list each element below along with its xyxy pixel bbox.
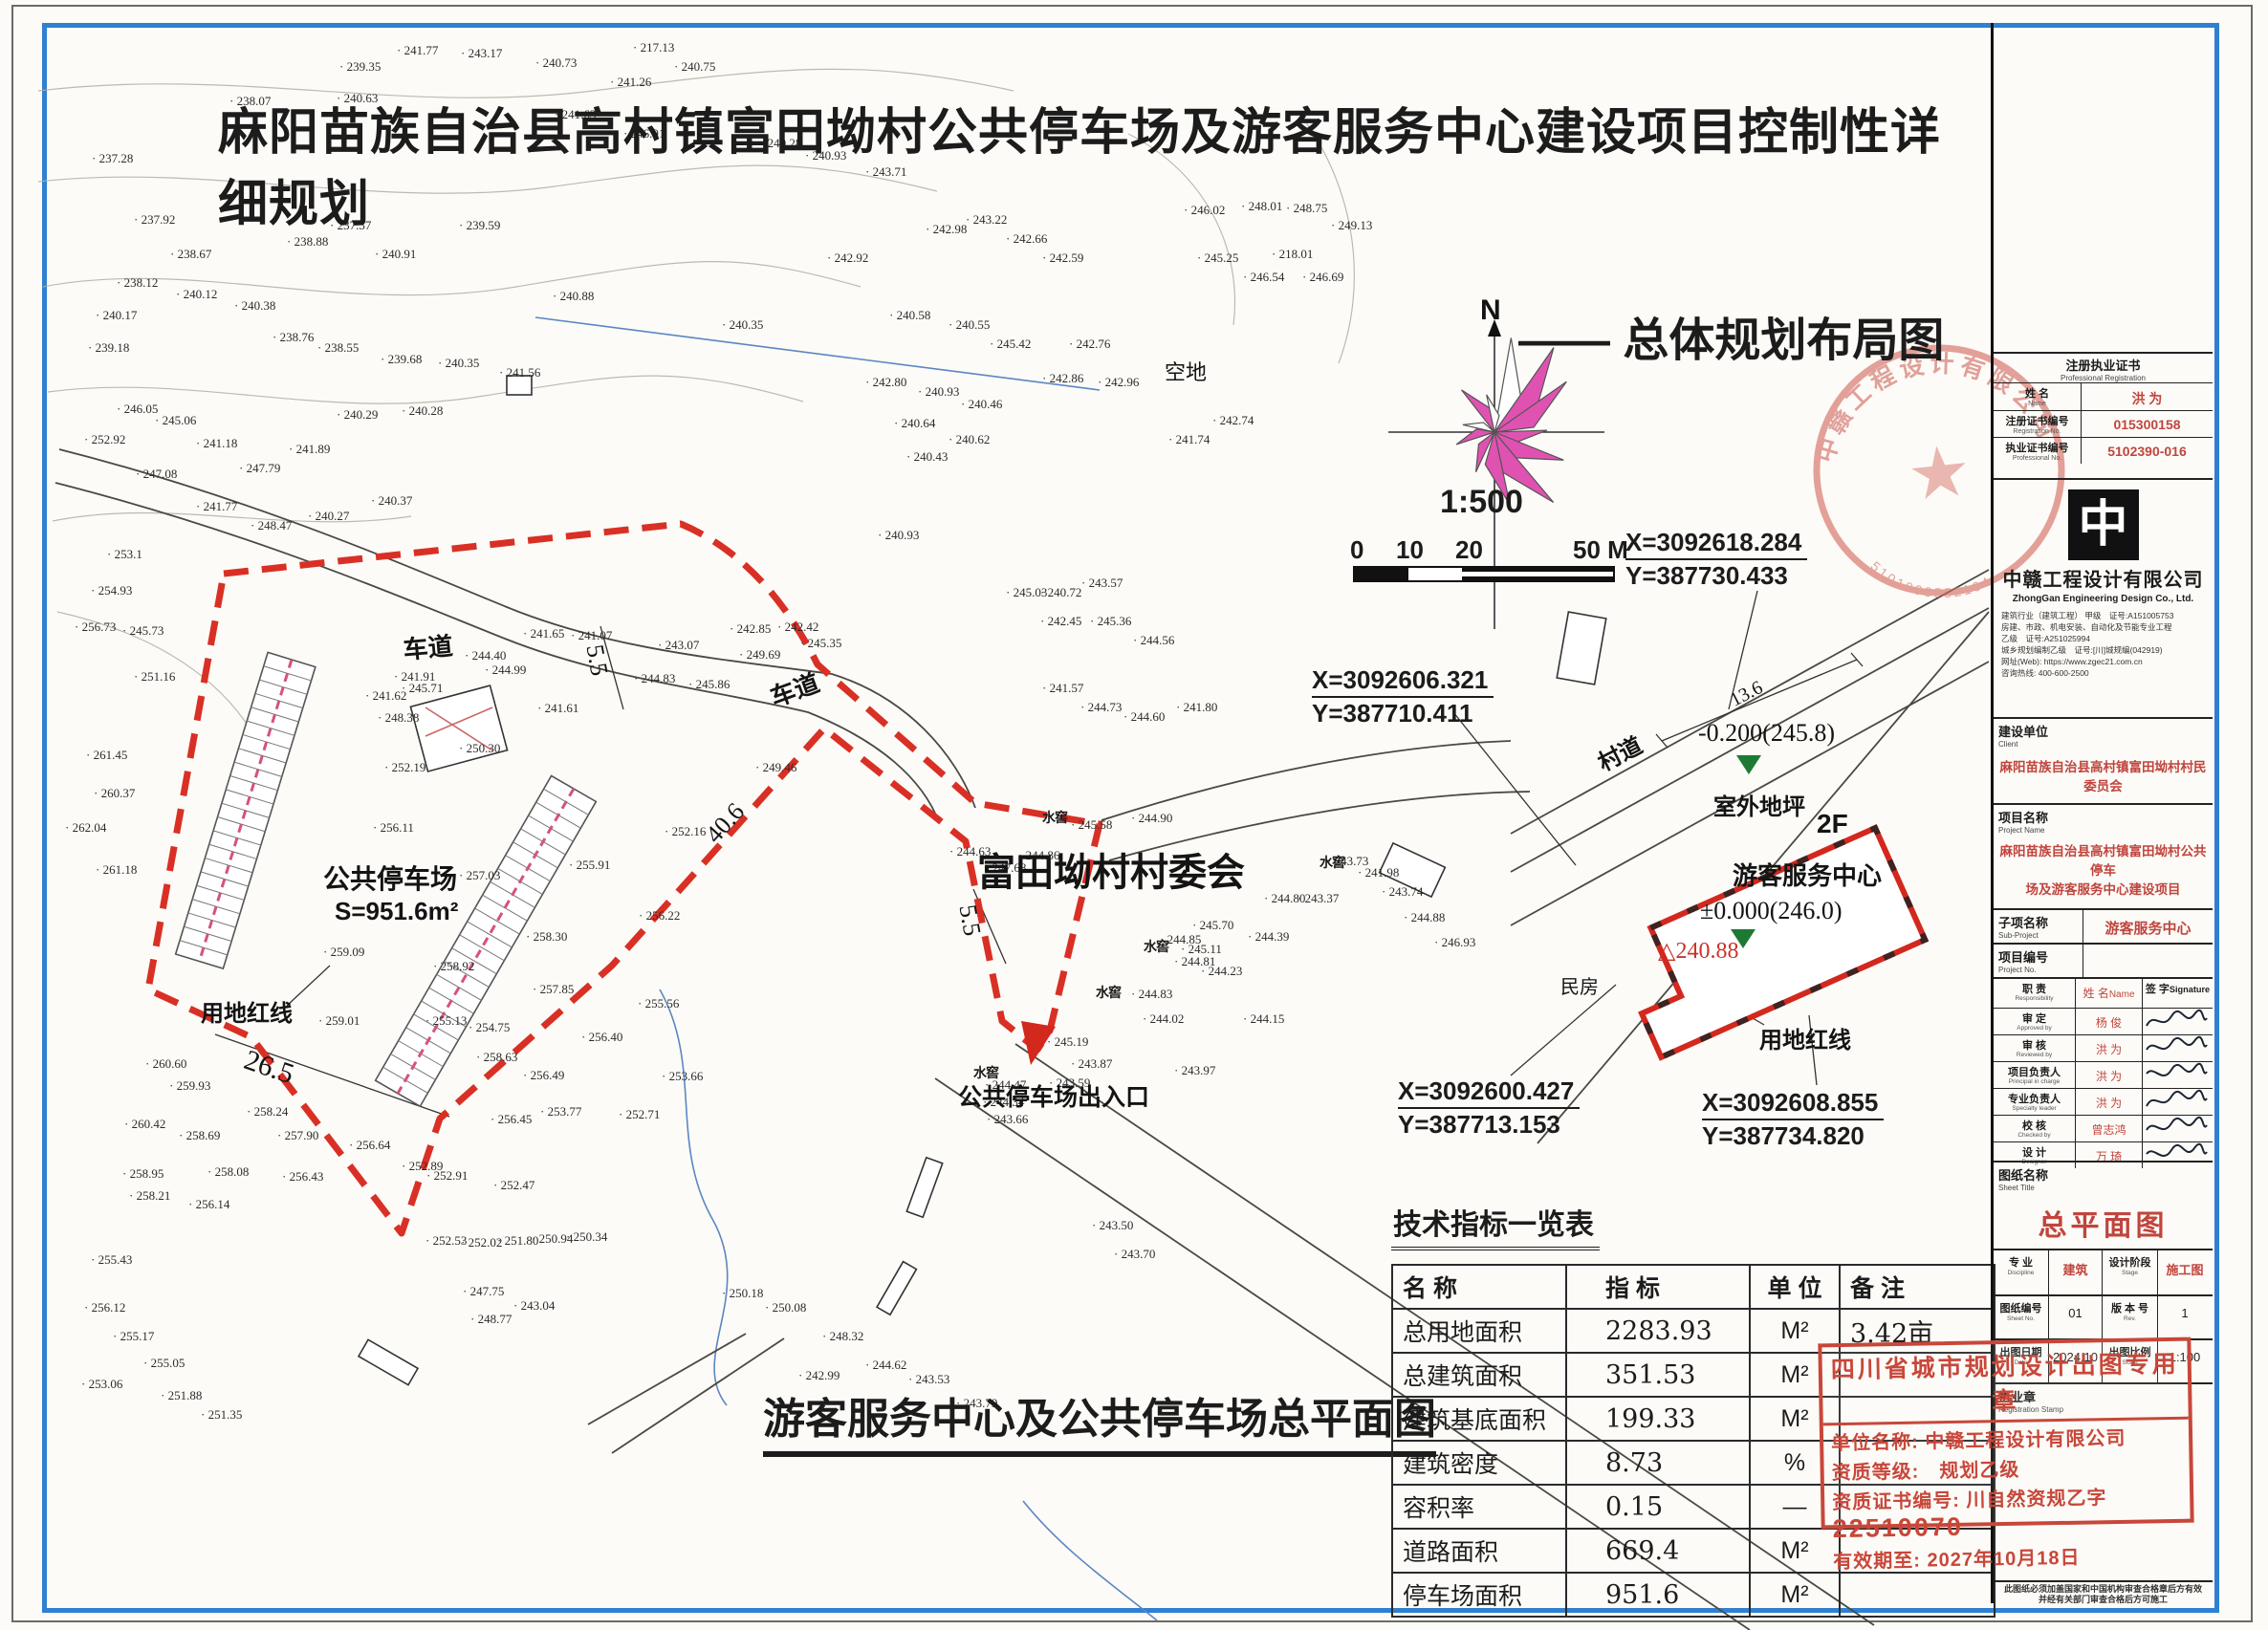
spot-elevation: · 259.01 bbox=[318, 1013, 360, 1029]
signature-role: 审 定Approved by bbox=[1994, 1009, 2076, 1034]
drawing-title: 麻阳苗族自治县高村镇富田坳村公共停车场及游客服务中心建设项目控制性详细规划 bbox=[218, 92, 1987, 235]
spot-elevation: · 250.30 bbox=[459, 741, 500, 756]
spot-elevation: · 244.23 bbox=[1201, 964, 1242, 979]
spot-elevation: · 240.72 bbox=[1040, 585, 1081, 600]
north-label: N bbox=[1480, 294, 1501, 327]
discipline-value: 建筑 bbox=[2049, 1250, 2103, 1294]
spot-elevation: · 245.71 bbox=[402, 681, 443, 696]
water-cellar-label: 水窖 bbox=[1144, 937, 1168, 956]
signature-squiggle bbox=[2143, 1062, 2210, 1087]
spot-elevation: · 256.73 bbox=[75, 619, 116, 635]
spot-elevation: · 242.59 bbox=[1042, 250, 1083, 266]
spot-elevation: · 247.79 bbox=[239, 461, 280, 476]
scale-bar-label: 0 bbox=[1350, 535, 1363, 565]
scale-bar-label: 50 M bbox=[1573, 535, 1628, 565]
project-section: 项目名称Project Name 麻阳苗族自治县高村镇富田坳村公共停车 场及游客… bbox=[1994, 803, 2213, 908]
spot-elevation: · 238.88 bbox=[287, 234, 328, 250]
signature-name: 洪 为 bbox=[2076, 1089, 2143, 1115]
spot-elevation: · 262.04 bbox=[65, 820, 106, 836]
spot-elevation: · 258.08 bbox=[207, 1164, 249, 1180]
spot-elevation: · 252.02 bbox=[461, 1235, 502, 1250]
tech-table-row: 停车场面积951.6M² bbox=[1392, 1573, 1995, 1617]
spot-elevation: · 241.98 bbox=[1358, 865, 1399, 880]
note-line: 并经有关部门审查合格后方可施工 bbox=[1994, 1595, 2213, 1605]
tech-table-cell: 0.15 bbox=[1566, 1485, 1750, 1529]
spot-elevation: · 252.71 bbox=[619, 1107, 660, 1122]
sheet-title-section: 图纸名称Sheet Title 总平面图 bbox=[1994, 1161, 2213, 1249]
spot-elevation: · 241.65 bbox=[523, 626, 564, 641]
spot-elevation: · 242.85 bbox=[730, 621, 771, 637]
scale-bar-label: 10 bbox=[1396, 535, 1424, 565]
signature-row: 项目负责人Principal in charge洪 为 bbox=[1994, 1061, 2213, 1088]
credential-line: 房建、市政、机电安装、自动化及节能专业工程 bbox=[2001, 621, 2205, 633]
tech-table-cell: 951.6 bbox=[1566, 1573, 1750, 1617]
signature-name: 曾志鸿 bbox=[2076, 1116, 2143, 1141]
stage-label-en: Stage bbox=[2103, 1270, 2157, 1276]
coordinate-callout: X=3092608.855Y=387734.820 bbox=[1702, 1088, 1884, 1151]
spot-elevation: · 260.37 bbox=[94, 786, 135, 801]
tech-table-cell: M² bbox=[1750, 1573, 1840, 1617]
titleblock-note: 此图纸必须加盖国家和中国机构审查合格章后方有效并经有关部门审查合格后方可施工 bbox=[1994, 1580, 2213, 1603]
spot-elevation: · 257.90 bbox=[277, 1128, 318, 1143]
tech-table-header: 单 位 bbox=[1750, 1265, 1840, 1309]
spot-elevation: · 257.85 bbox=[533, 982, 574, 997]
spot-elevation: · 244.73 bbox=[1080, 700, 1122, 715]
client-value: 麻阳苗族自治县高村镇富田坳村村民委员会 bbox=[1994, 756, 2213, 794]
tech-table-cell: 总用地面积 bbox=[1392, 1309, 1566, 1353]
drawing-subtitle: —— 总体规划布局图 bbox=[1518, 302, 1944, 369]
spot-elevation: · 237.92 bbox=[134, 212, 175, 228]
registration-row-value: 洪 为 bbox=[2082, 383, 2213, 410]
scale-bar bbox=[1353, 566, 1615, 582]
project-label: 项目名称 bbox=[1998, 811, 2048, 825]
subproject-value: 游客服务中心 bbox=[2083, 910, 2213, 943]
projectno-row: 项目编号Project No. bbox=[1994, 943, 2213, 977]
spot-elevation: · 241.61 bbox=[537, 701, 578, 716]
signature-role: 项目负责人Principal in charge bbox=[1994, 1062, 2076, 1088]
spot-elevation: · 240.43 bbox=[906, 449, 948, 465]
spot-elevation: · 240.93 bbox=[878, 528, 919, 543]
credential-line: 咨询热线: 400-600-2500 bbox=[2001, 667, 2205, 679]
signature-autograph bbox=[2143, 1035, 2213, 1061]
spot-elevation: · 244.90 bbox=[1131, 811, 1172, 826]
spot-elevation: · 252.92 bbox=[84, 432, 125, 447]
client-label-en: Client bbox=[1998, 740, 2213, 749]
spot-elevation: · 253.06 bbox=[81, 1377, 122, 1392]
spot-elevation: · 242.99 bbox=[798, 1368, 840, 1383]
map-label: ±0.000(246.0) bbox=[1700, 897, 1843, 925]
rev-label-en: Rev. bbox=[2103, 1315, 2157, 1322]
spot-elevation: · 238.76 bbox=[273, 330, 314, 345]
coordinate-callout: X=3092618.284Y=387730.433 bbox=[1625, 528, 1807, 591]
spot-elevation: · 256.40 bbox=[581, 1030, 622, 1045]
signature-header-cell: 姓 名Name bbox=[2076, 979, 2143, 1008]
spot-elevation: · 248.47 bbox=[251, 518, 292, 533]
registration-row-label: 注册证书编号Registration No. bbox=[1994, 411, 2082, 437]
spot-elevation: · 243.17 bbox=[461, 46, 502, 61]
spot-elevation: · 240.73 bbox=[535, 55, 577, 71]
spot-elevation: · 241.77 bbox=[397, 43, 438, 58]
spot-elevation: · 256.45 bbox=[491, 1112, 532, 1127]
tech-table-cell bbox=[1840, 1573, 1995, 1617]
spot-elevation: · 241.62 bbox=[365, 688, 406, 704]
spot-elevation: · 241.74 bbox=[1168, 432, 1210, 447]
spot-elevation: · 244.39 bbox=[1248, 929, 1289, 945]
spot-elevation: · 251.88 bbox=[161, 1388, 202, 1403]
qualification-stamp-title: 四川省城市规划设计出图专用章 bbox=[1821, 1341, 2188, 1426]
signature-role: 校 核Checked by bbox=[1994, 1116, 2076, 1141]
coordinate-callout: X=3092606.321Y=387710.411 bbox=[1312, 665, 1494, 728]
spot-elevation: · 255.43 bbox=[91, 1252, 132, 1268]
spot-elevation: · 245.36 bbox=[1090, 614, 1131, 629]
signature-name: 杨 俊 bbox=[2076, 1009, 2143, 1034]
spot-elevation: · 245.35 bbox=[800, 636, 841, 651]
spot-elevation: · 244.15 bbox=[1243, 1011, 1284, 1027]
spot-elevation: · 239.35 bbox=[339, 59, 381, 75]
project-value-1: 麻阳苗族自治县高村镇富田坳村公共停车 bbox=[1994, 840, 2213, 879]
rev-label: 版 本 号 bbox=[2111, 1303, 2148, 1315]
spot-elevation: · 259.09 bbox=[323, 945, 364, 960]
registration-title-en: Professional Registration bbox=[1994, 374, 2213, 382]
map-label: 用地红线 bbox=[1759, 1021, 1851, 1054]
level-marker-icon bbox=[1736, 755, 1761, 774]
water-cellar-label: 水窖 bbox=[1319, 853, 1344, 872]
coordinate-y: Y=387734.820 bbox=[1702, 1120, 1884, 1151]
level-marker-icon bbox=[1731, 929, 1756, 948]
spot-elevation: · 254.75 bbox=[469, 1020, 510, 1035]
spot-elevation: · 244.56 bbox=[1133, 633, 1174, 648]
spot-elevation: · 242.96 bbox=[1098, 375, 1139, 390]
signature-row: 审 定Approved by杨 俊 bbox=[1994, 1008, 2213, 1034]
signature-autograph bbox=[2143, 1062, 2213, 1088]
water-cellar-label: 水窖 bbox=[1096, 983, 1121, 1002]
spot-elevation: · 240.37 bbox=[371, 493, 412, 509]
map-label: S=951.6m² bbox=[335, 897, 458, 926]
scale-ratio: 1:500 bbox=[1440, 484, 1523, 521]
spot-elevation: · 242.74 bbox=[1212, 413, 1254, 428]
signature-name: 洪 为 bbox=[2076, 1035, 2143, 1061]
coordinate-y: Y=387710.411 bbox=[1312, 698, 1494, 728]
tech-table-title: 技术指标一览表 bbox=[1391, 1201, 1600, 1250]
signature-header-cell: 签 字Signature bbox=[2143, 979, 2213, 1008]
stamp-cert-line: 资质证书编号: 川自然资规乙字22510070 bbox=[1824, 1479, 2191, 1545]
stage-label: 设计阶段 bbox=[2109, 1257, 2151, 1269]
tech-table-cell: 669.4 bbox=[1566, 1529, 1750, 1573]
stage-value: 施工图 bbox=[2158, 1250, 2212, 1294]
spot-elevation: · 255.05 bbox=[143, 1356, 185, 1371]
spot-elevation: · 243.66 bbox=[987, 1112, 1028, 1127]
scale-bar-label: 20 bbox=[1455, 535, 1483, 565]
spot-elevation: · 243.87 bbox=[1071, 1056, 1112, 1072]
map-label: 公共停车场出入口 bbox=[958, 1078, 1149, 1113]
coordinate-y: Y=387730.433 bbox=[1625, 560, 1807, 591]
sheetno-value: 01 bbox=[2049, 1296, 2103, 1338]
spot-elevation: · 244.80 bbox=[1264, 891, 1305, 906]
spot-elevation: · 245.86 bbox=[688, 677, 730, 692]
map-label: 2F bbox=[1817, 809, 1848, 839]
registration-row-label: 姓 名Name bbox=[1994, 383, 2082, 410]
company-credentials: 建筑行业（建筑工程） 甲级 证号:A151005753房建、市政、机电安装、自动… bbox=[1994, 610, 2213, 679]
coordinate-x: X=3092618.284 bbox=[1625, 528, 1807, 560]
tech-table-cell: 2283.93 bbox=[1566, 1309, 1750, 1353]
subproject-label: 子项名称 bbox=[1998, 916, 2048, 930]
spot-elevation: · 245.58 bbox=[1071, 817, 1112, 833]
signature-name: 洪 为 bbox=[2076, 1062, 2143, 1088]
spot-elevation: · 258.95 bbox=[122, 1166, 164, 1182]
sheetno-label-en: Sheet No. bbox=[1994, 1315, 2048, 1322]
company-section: 中 中赣工程设计有限公司 ZhongGan Engineering Design… bbox=[1994, 478, 2213, 717]
spot-elevation: · 245.19 bbox=[1047, 1034, 1088, 1050]
spot-elevation: · 240.38 bbox=[234, 298, 275, 314]
map-label: 5.5 bbox=[579, 642, 613, 678]
spot-elevation: · 241.07 bbox=[571, 628, 612, 643]
spot-elevation: · 241.26 bbox=[610, 75, 651, 90]
sheetno-row: 图纸编号Sheet No. 01 版 本 号Rev. 1 bbox=[1994, 1294, 2213, 1338]
spot-elevation: · 242.76 bbox=[1069, 337, 1110, 352]
stamp-cert-number: 22510070 bbox=[1832, 1512, 1963, 1543]
spot-elevation: · 252.91 bbox=[426, 1168, 468, 1184]
discipline-label-en: Discipline bbox=[1994, 1270, 2048, 1276]
spot-elevation: · 243.04 bbox=[513, 1298, 555, 1314]
coordinate-y: Y=387713.153 bbox=[1398, 1109, 1580, 1140]
spot-elevation: · 240.27 bbox=[308, 509, 349, 524]
company-logo: 中 bbox=[2068, 489, 2139, 560]
spot-elevation: · 242.42 bbox=[777, 619, 818, 635]
project-value-2: 场及游客服务中心建设项目 bbox=[1994, 879, 2213, 898]
spot-elevation: · 217.13 bbox=[633, 40, 674, 55]
spot-elevation: · 246.05 bbox=[117, 402, 158, 417]
map-label: -0.200(245.8) bbox=[1698, 719, 1835, 748]
sheet-title-value: 总平面图 bbox=[1994, 1202, 2213, 1244]
spot-elevation: · 256.49 bbox=[523, 1068, 564, 1083]
signature-squiggle bbox=[2143, 1035, 2210, 1060]
projectno-label-en: Project No. bbox=[1998, 966, 2083, 974]
discipline-label: 专 业 bbox=[2009, 1257, 2033, 1269]
tech-table-cell: 总建筑面积 bbox=[1392, 1353, 1566, 1397]
coordinate-x: X=3092600.427 bbox=[1398, 1076, 1580, 1109]
spot-elevation: · 245.42 bbox=[990, 337, 1031, 352]
spot-elevation: · 246.93 bbox=[1434, 935, 1475, 950]
spot-elevation: · 240.91 bbox=[375, 247, 416, 262]
spot-elevation: · 247.08 bbox=[136, 467, 177, 482]
spot-elevation: · 246.69 bbox=[1302, 270, 1343, 285]
projectno-label: 项目编号 bbox=[1998, 950, 2048, 965]
spot-elevation: · 241.89 bbox=[289, 442, 330, 457]
registration-row: 注册证书编号Registration No.015300158 bbox=[1994, 410, 2213, 437]
subproject-label-en: Sub-Project bbox=[1998, 931, 2083, 940]
spot-elevation: · 239.68 bbox=[381, 352, 422, 367]
sheet-title-label-en: Sheet Title bbox=[1998, 1184, 2213, 1192]
drawing-sheet: ★ 中赣工程设计有限公司 5101098552104 麻阳苗族自治县高村镇富田坳… bbox=[0, 0, 2268, 1630]
spot-elevation: · 243.74 bbox=[1382, 884, 1423, 900]
signature-squiggle bbox=[2143, 1089, 2210, 1114]
spot-elevation: · 256.14 bbox=[188, 1197, 229, 1212]
plan-caption: 游客服务中心及公共停车场总平面图 bbox=[763, 1384, 1436, 1457]
registration-section: 注册执业证书 Professional Registration 姓 名Name… bbox=[1994, 352, 2213, 478]
sheet-title-label: 图纸名称 bbox=[1998, 1168, 2048, 1183]
signature-table: 职 责Responsibility姓 名Name签 字Signature审 定A… bbox=[1994, 977, 2213, 1161]
credential-line: 建筑行业（建筑工程） 甲级 证号:A151005753 bbox=[2001, 610, 2205, 621]
coordinate-callout: X=3092600.427Y=387713.153 bbox=[1398, 1076, 1580, 1140]
signature-header-cell: 职 责Responsibility bbox=[1994, 979, 2076, 1008]
spot-elevation: · 261.18 bbox=[96, 862, 137, 878]
rev-value: 1 bbox=[2158, 1296, 2212, 1338]
spot-elevation: · 250.34 bbox=[566, 1229, 607, 1245]
spot-elevation: · 245.06 bbox=[155, 413, 196, 428]
subproject-row: 子项名称Sub-Project 游客服务中心 bbox=[1994, 908, 2213, 943]
spot-elevation: · 244.40 bbox=[465, 648, 506, 663]
map-label: 室外地坪 bbox=[1713, 788, 1805, 821]
stamp-star-icon: ★ bbox=[1904, 430, 1975, 515]
water-cellar-label: 水窖 bbox=[1042, 808, 1067, 827]
spot-elevation: · 245.25 bbox=[1197, 250, 1238, 266]
coordinate-x: X=3092606.321 bbox=[1312, 665, 1494, 698]
map-label: 车道 bbox=[402, 626, 454, 665]
spot-elevation: · 250.18 bbox=[722, 1286, 763, 1301]
scale-bar-segment bbox=[1462, 568, 1613, 580]
tech-table-cell: 道路面积 bbox=[1392, 1529, 1566, 1573]
spot-elevation: · 243.97 bbox=[1174, 1063, 1215, 1078]
discipline-row: 专 业Discipline 建筑 设计阶段Stage 施工图 bbox=[1994, 1249, 2213, 1294]
spot-elevation: · 241.56 bbox=[499, 365, 540, 380]
spot-elevation: · 240.35 bbox=[438, 356, 479, 371]
spot-elevation: · 261.45 bbox=[86, 748, 127, 763]
spot-elevation: · 251.16 bbox=[134, 669, 175, 685]
tech-table-header: 名 称 bbox=[1392, 1265, 1566, 1309]
spot-elevation: · 258.30 bbox=[526, 929, 567, 945]
tech-table-header: 备 注 bbox=[1840, 1265, 1995, 1309]
spot-elevation: · 260.42 bbox=[124, 1117, 165, 1132]
spot-elevation: · 240.28 bbox=[402, 403, 443, 419]
sheetno-label: 图纸编号 bbox=[2000, 1303, 2042, 1315]
spot-elevation: · 240.29 bbox=[337, 407, 378, 423]
signature-squiggle bbox=[2143, 1009, 2210, 1033]
spot-elevation: · 240.62 bbox=[949, 432, 990, 447]
signature-autograph bbox=[2143, 1116, 2213, 1141]
spot-elevation: · 240.46 bbox=[961, 397, 1002, 412]
spot-elevation: · 256.22 bbox=[639, 908, 680, 924]
scale-bar-segment bbox=[1355, 568, 1408, 580]
spot-elevation: · 240.55 bbox=[949, 317, 990, 333]
tech-table-cell: 351.53 bbox=[1566, 1353, 1750, 1397]
spot-elevation: · 255.17 bbox=[113, 1329, 154, 1344]
signature-row: 专业负责人Specialty leader洪 为 bbox=[1994, 1088, 2213, 1115]
tech-table-header: 指 标 bbox=[1566, 1265, 1750, 1309]
spot-elevation: · 258.69 bbox=[179, 1128, 220, 1143]
spot-elevation: · 242.80 bbox=[865, 375, 906, 390]
map-label: 民房 bbox=[1560, 971, 1599, 999]
map-label: 游客服务中心 bbox=[1733, 857, 1882, 892]
spot-elevation: · 254.93 bbox=[91, 583, 132, 598]
spot-elevation: · 255.56 bbox=[638, 996, 679, 1011]
spot-elevation: · 253.1 bbox=[107, 547, 142, 562]
spot-elevation: · 255.91 bbox=[569, 858, 610, 873]
spot-elevation: · 259.93 bbox=[169, 1078, 210, 1094]
spot-elevation: · 256.64 bbox=[349, 1138, 390, 1153]
coordinate-x: X=3092608.855 bbox=[1702, 1088, 1884, 1120]
water-cellar-label: 水窖 bbox=[973, 1063, 998, 1082]
map-label: △240.88 bbox=[1658, 937, 1738, 965]
spot-elevation: · 241.80 bbox=[1176, 700, 1217, 715]
spot-elevation: · 260.60 bbox=[145, 1056, 186, 1072]
signature-row: 校 核Checked by曾志鸿 bbox=[1994, 1115, 2213, 1141]
spot-elevation: · 257.03 bbox=[459, 868, 500, 883]
spot-elevation: · 242.86 bbox=[1042, 371, 1083, 386]
spot-elevation: · 248.77 bbox=[470, 1312, 512, 1327]
spot-elevation: · 243.70 bbox=[1114, 1247, 1155, 1262]
spot-elevation: · 248.32 bbox=[822, 1329, 863, 1344]
registration-row-label: 执业证书编号Professional No. bbox=[1994, 438, 2082, 464]
registration-row-value: 015300158 bbox=[2082, 411, 2213, 437]
spot-elevation: · 218.01 bbox=[1272, 247, 1313, 262]
map-label: 空地 bbox=[1165, 356, 1207, 386]
spot-elevation: · 240.58 bbox=[889, 308, 930, 323]
spot-elevation: · 240.12 bbox=[176, 287, 217, 302]
spot-elevation: · 241.18 bbox=[196, 436, 237, 451]
spot-elevation: · 238.67 bbox=[170, 247, 211, 262]
spot-elevation: · 258.92 bbox=[433, 959, 474, 974]
project-label-en: Project Name bbox=[1998, 826, 2213, 835]
spot-elevation: · 251.35 bbox=[201, 1407, 242, 1423]
spot-elevation: · 240.88 bbox=[553, 289, 594, 304]
registration-title: 注册执业证书 bbox=[1994, 354, 2213, 374]
spot-elevation: · 240.75 bbox=[674, 59, 715, 75]
spot-elevation: · 244.88 bbox=[1404, 910, 1445, 925]
spot-elevation: · 244.62 bbox=[865, 1358, 906, 1373]
spot-elevation: · 244.99 bbox=[485, 663, 526, 678]
spot-elevation: · 240.35 bbox=[722, 317, 763, 333]
company-name-en: ZhongGan Engineering Design Co., Ltd. bbox=[1994, 594, 2213, 604]
tech-table-cell: 停车场面积 bbox=[1392, 1573, 1566, 1617]
qualification-stamp: 四川省城市规划设计出图专用章 单位名称: 中赣工程设计有限公司 资质等级: 规划… bbox=[1818, 1337, 2193, 1530]
spot-elevation: · 244.60 bbox=[1123, 709, 1165, 725]
map-label: 用地红线 bbox=[201, 994, 293, 1028]
spot-elevation: · 249.46 bbox=[755, 760, 796, 775]
spot-elevation: · 245.70 bbox=[1192, 918, 1233, 933]
spot-elevation: · 244.83 bbox=[1131, 987, 1172, 1002]
spot-elevation: · 240.17 bbox=[96, 308, 137, 323]
registration-row: 执业证书编号Professional No.5102390-016 bbox=[1994, 437, 2213, 464]
spot-elevation: · 252.47 bbox=[493, 1178, 534, 1193]
spot-elevation: · 256.11 bbox=[373, 820, 414, 836]
tech-table-cell: 容积率 bbox=[1392, 1485, 1566, 1529]
tech-table-cell: 8.73 bbox=[1566, 1441, 1750, 1485]
spot-elevation: · 247.75 bbox=[463, 1284, 504, 1299]
client-label: 建设单位 bbox=[1998, 725, 2048, 739]
spot-elevation: · 241.77 bbox=[196, 499, 237, 514]
spot-elevation: · 243.50 bbox=[1092, 1218, 1133, 1233]
map-label: 富田坳村村委会 bbox=[977, 841, 1245, 897]
client-section: 建设单位Client 麻阳苗族自治县高村镇富田坳村村民委员会 bbox=[1994, 717, 2213, 803]
spot-elevation: · 244.02 bbox=[1143, 1011, 1184, 1027]
signature-role: 专业负责人Specialty leader bbox=[1994, 1089, 2076, 1115]
spot-elevation: · 250.08 bbox=[765, 1300, 806, 1315]
tech-table-cell: 建筑密度 bbox=[1392, 1441, 1566, 1485]
spot-elevation: · 258.21 bbox=[129, 1188, 170, 1204]
spot-elevation: · 241.57 bbox=[1042, 681, 1083, 696]
registration-row-value: 5102390-016 bbox=[2082, 438, 2213, 464]
spot-elevation: · 252.19 bbox=[384, 760, 425, 775]
spot-elevation: · 246.54 bbox=[1243, 270, 1284, 285]
spot-elevation: · 239.18 bbox=[88, 340, 129, 356]
spot-elevation: · 249.69 bbox=[739, 647, 780, 663]
signature-role: 审 核Reviewed by bbox=[1994, 1035, 2076, 1061]
credential-line: 乙级 证号:A251025994 bbox=[2001, 633, 2205, 644]
spot-elevation: · 256.43 bbox=[282, 1169, 323, 1184]
stamp-cert-prefix: 资质证书编号: 川自然资规乙字 bbox=[1832, 1488, 2107, 1513]
spot-elevation: · 248.38 bbox=[378, 710, 419, 726]
credential-line: 网址(Web): https://www.zgec21.com.cn bbox=[2001, 656, 2205, 667]
